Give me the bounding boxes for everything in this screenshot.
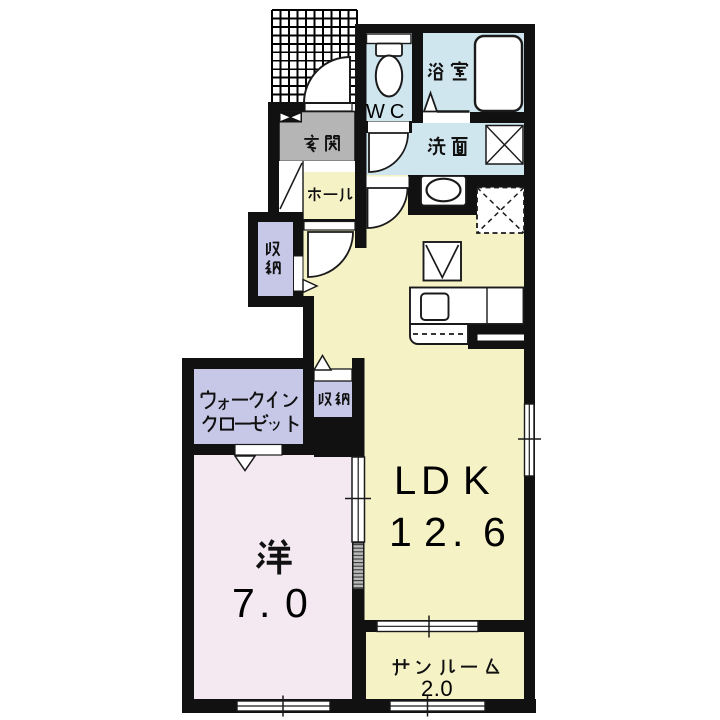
svg-text:D: D — [421, 459, 450, 503]
svg-text:0: 0 — [285, 580, 308, 626]
svg-text:.: . — [452, 509, 463, 555]
svg-text:K: K — [463, 459, 490, 503]
svg-text:6: 6 — [483, 509, 506, 555]
svg-text:2: 2 — [424, 509, 447, 555]
svg-text:WC: WC — [366, 101, 409, 123]
svg-text:7: 7 — [232, 580, 255, 626]
svg-text:L: L — [394, 459, 416, 503]
svg-text:1: 1 — [389, 509, 412, 555]
svg-text:2.0: 2.0 — [421, 676, 453, 701]
svg-text:.: . — [259, 580, 270, 626]
